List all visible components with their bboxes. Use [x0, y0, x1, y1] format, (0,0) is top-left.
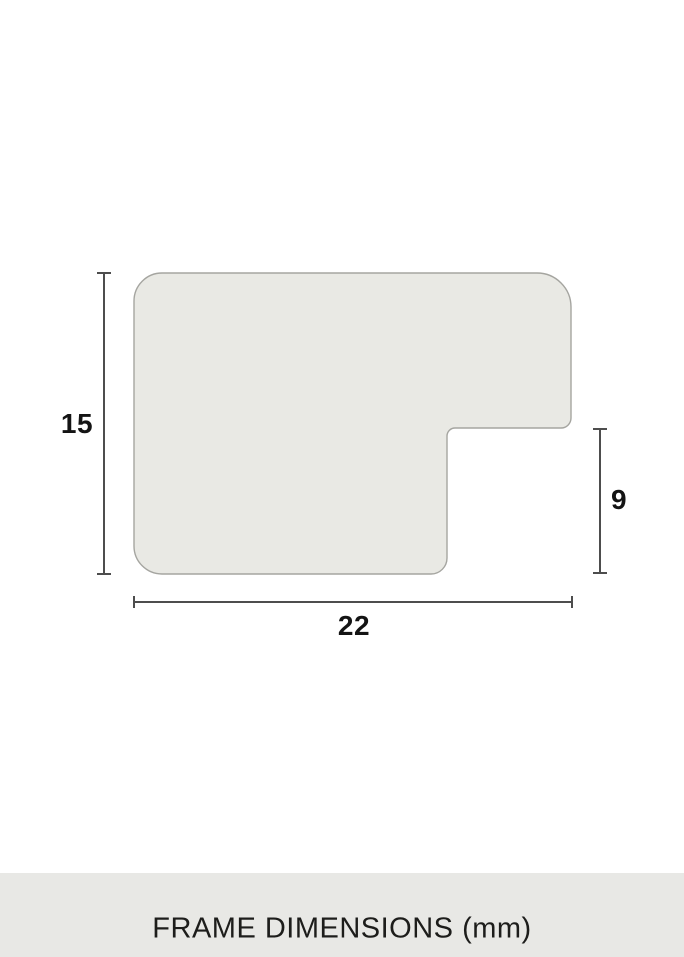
height-dimension-line	[97, 273, 111, 574]
width-dimension-label: 22	[338, 610, 370, 642]
profile-diagram	[0, 0, 684, 957]
caption-text: FRAME DIMENSIONS (mm)	[152, 913, 531, 946]
frame-profile-shape	[134, 273, 571, 574]
rabbet-dimension-line	[593, 429, 607, 573]
frame-dimensions-page: 15 9 22 FRAME DIMENSIONS (mm)	[0, 0, 684, 957]
caption-bar: FRAME DIMENSIONS (mm)	[0, 873, 684, 957]
rabbet-dimension-label: 9	[611, 484, 627, 516]
width-dimension-line	[134, 596, 572, 608]
height-dimension-label: 15	[61, 408, 93, 440]
